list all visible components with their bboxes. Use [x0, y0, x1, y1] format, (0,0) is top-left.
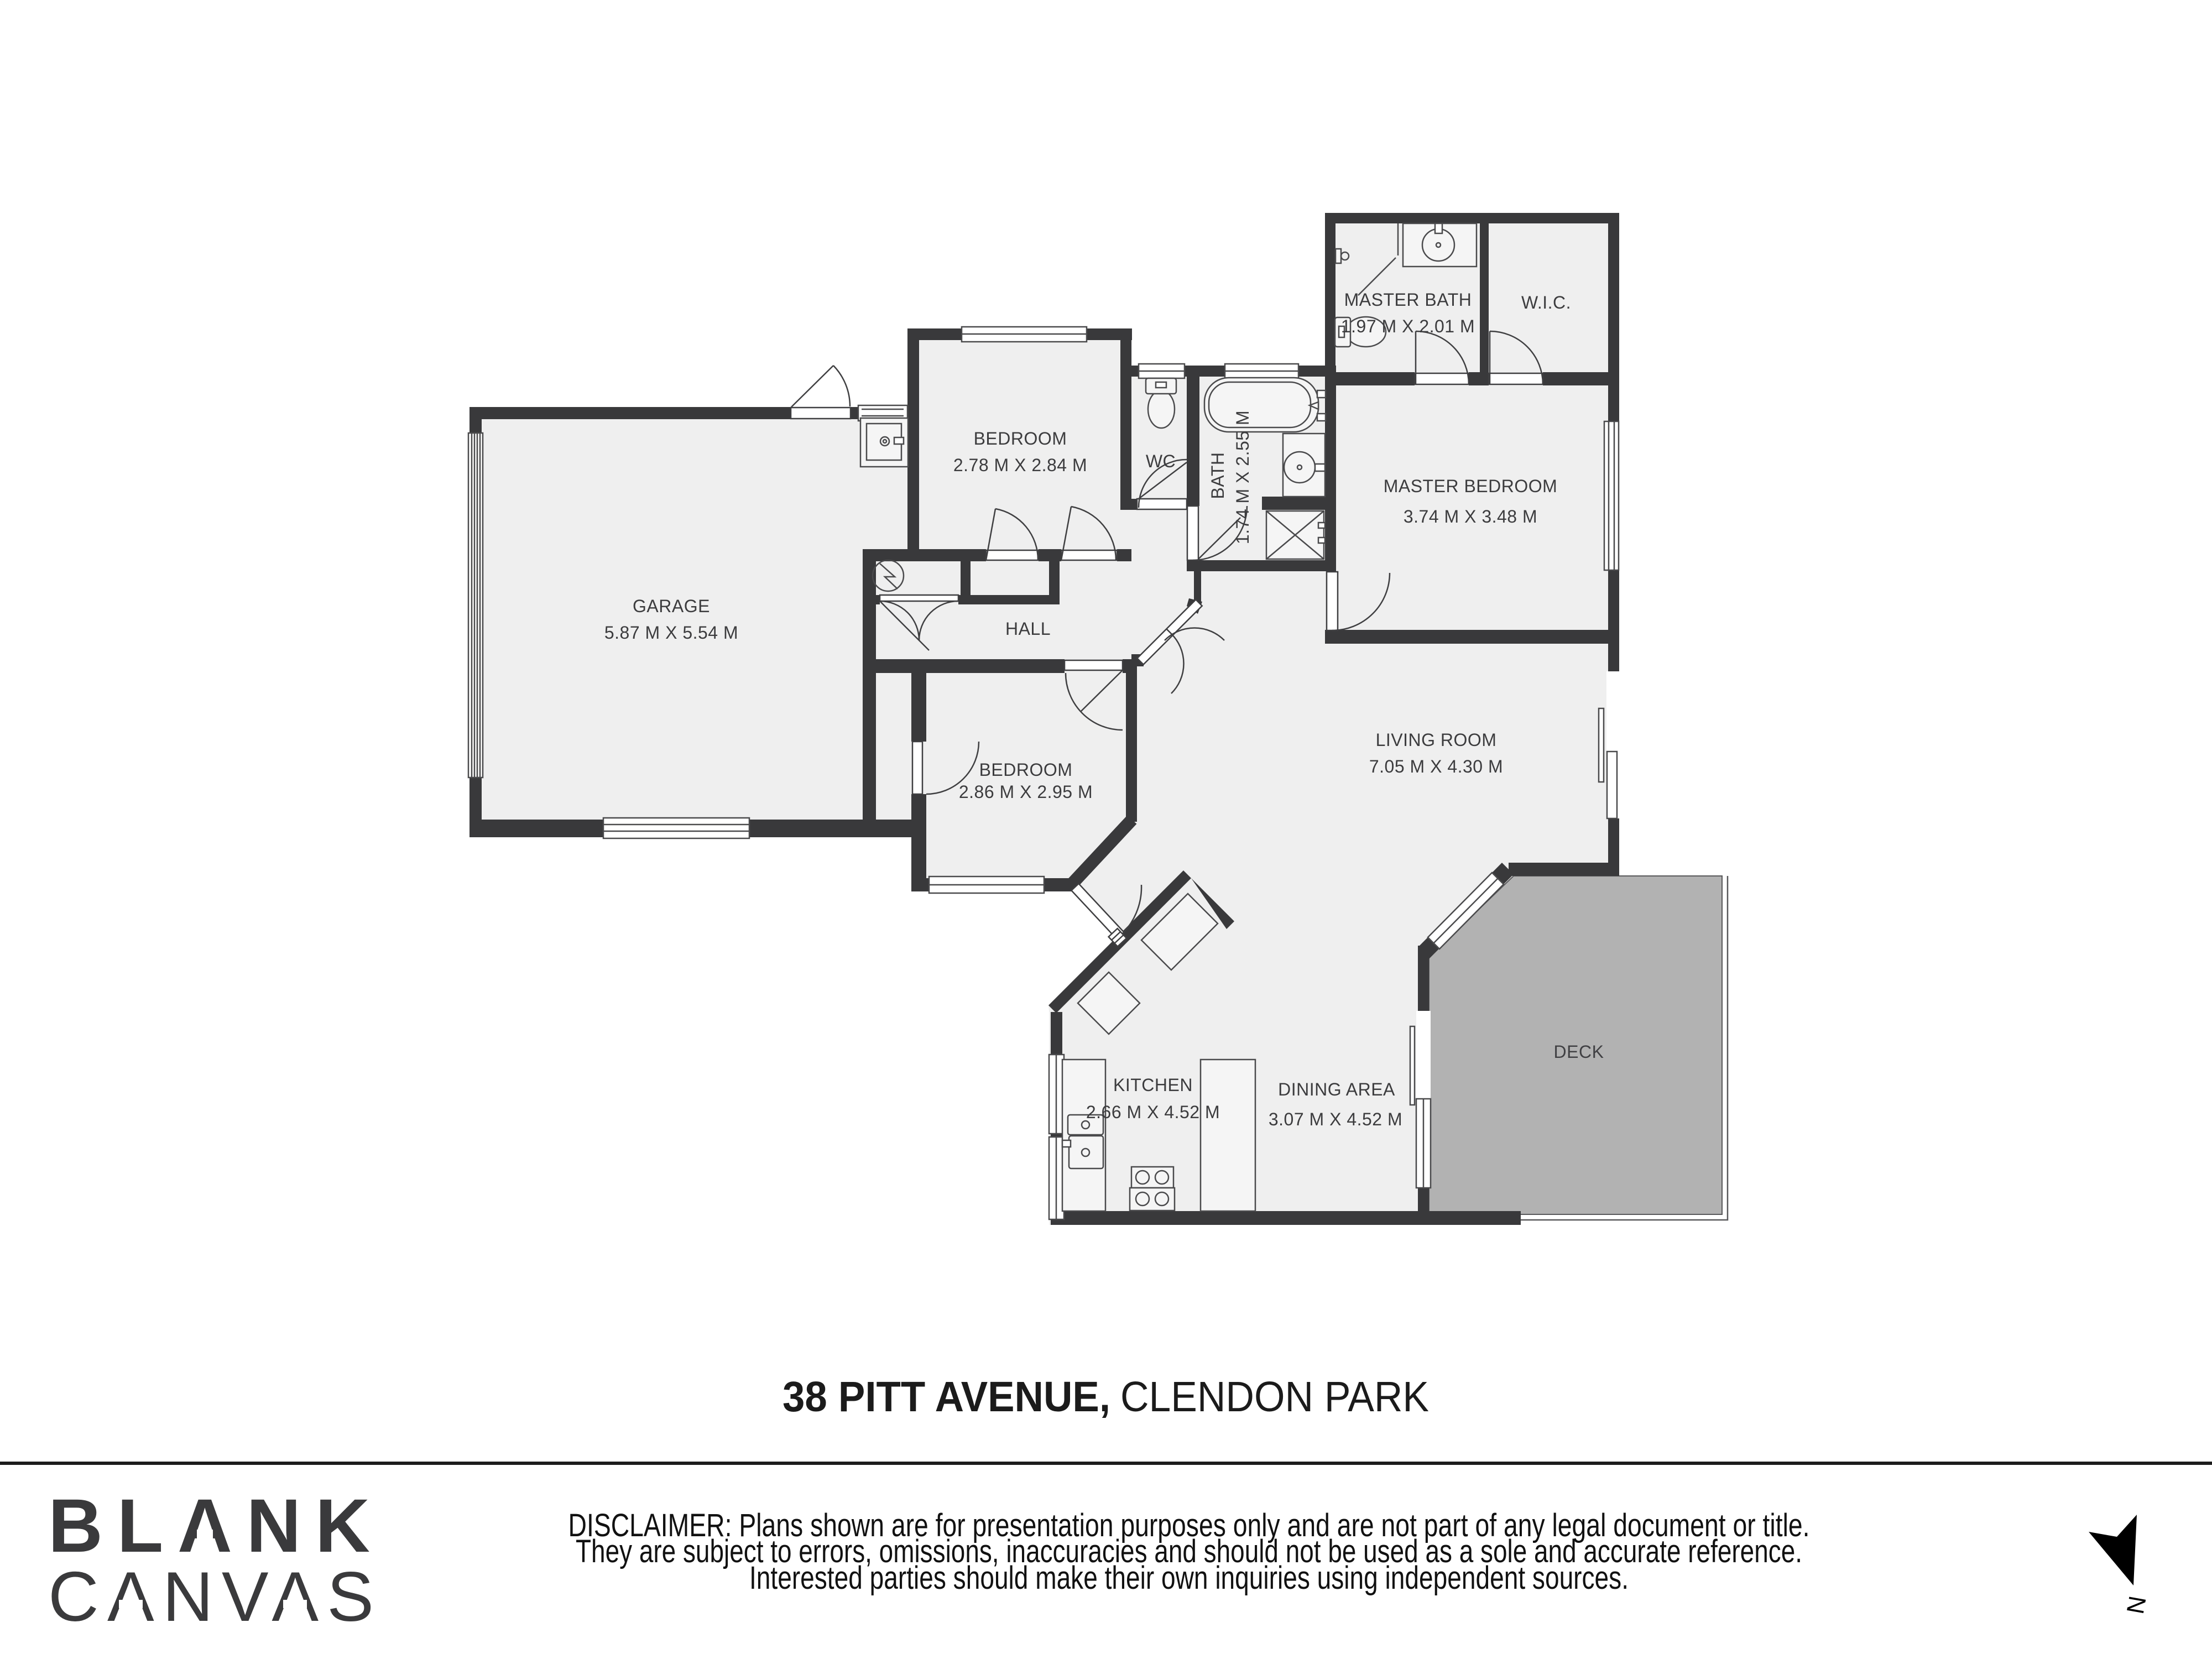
svg-text:BEDROOM: BEDROOM — [979, 760, 1073, 780]
svg-text:MASTER BEDROOM: MASTER BEDROOM — [1384, 476, 1558, 496]
svg-text:BLANK: BLANK — [48, 1484, 370, 1568]
svg-text:BATH: BATH — [1208, 452, 1228, 499]
svg-text:N: N — [2121, 1594, 2151, 1616]
svg-text:HALL: HALL — [1005, 619, 1051, 639]
svg-text:3.74 M X 3.48 M: 3.74 M X 3.48 M — [1404, 507, 1537, 526]
svg-text:38 PITT AVENUE,: 38 PITT AVENUE, — [782, 1373, 1110, 1421]
svg-text:CANVAS: CANVAS — [48, 1557, 374, 1636]
svg-text:2.86 M X 2.95 M: 2.86 M X 2.95 M — [959, 782, 1093, 802]
svg-text:Interested parties should make: Interested parties should make their own… — [749, 1560, 1629, 1596]
svg-text:MASTER BATH: MASTER BATH — [1344, 290, 1472, 310]
svg-text:2.66 M X 4.52 M: 2.66 M X 4.52 M — [1086, 1102, 1220, 1122]
svg-text:2.78 M X 2.84 M: 2.78 M X 2.84 M — [953, 455, 1087, 475]
svg-text:BEDROOM: BEDROOM — [974, 429, 1067, 448]
svg-text:KITCHEN: KITCHEN — [1113, 1075, 1193, 1095]
svg-text:1.74 M X 2.55 M: 1.74 M X 2.55 M — [1233, 410, 1253, 544]
svg-text:5.87 M X 5.54 M: 5.87 M X 5.54 M — [604, 623, 738, 643]
svg-text:3.07 M X 4.52 M: 3.07 M X 4.52 M — [1269, 1109, 1402, 1129]
svg-text:W.I.C.: W.I.C. — [1521, 293, 1571, 312]
svg-text:1.97 M X 2.01 M: 1.97 M X 2.01 M — [1341, 316, 1475, 336]
svg-text:GARAGE: GARAGE — [633, 596, 710, 616]
svg-text:WC: WC — [1146, 451, 1176, 471]
svg-text:DECK: DECK — [1554, 1042, 1604, 1062]
svg-text:7.05 M X 4.30 M: 7.05 M X 4.30 M — [1369, 757, 1503, 776]
svg-text:DINING AREA: DINING AREA — [1278, 1079, 1395, 1099]
svg-text:LIVING ROOM: LIVING ROOM — [1376, 730, 1497, 750]
svg-text:CLENDON PARK: CLENDON PARK — [1120, 1373, 1429, 1421]
